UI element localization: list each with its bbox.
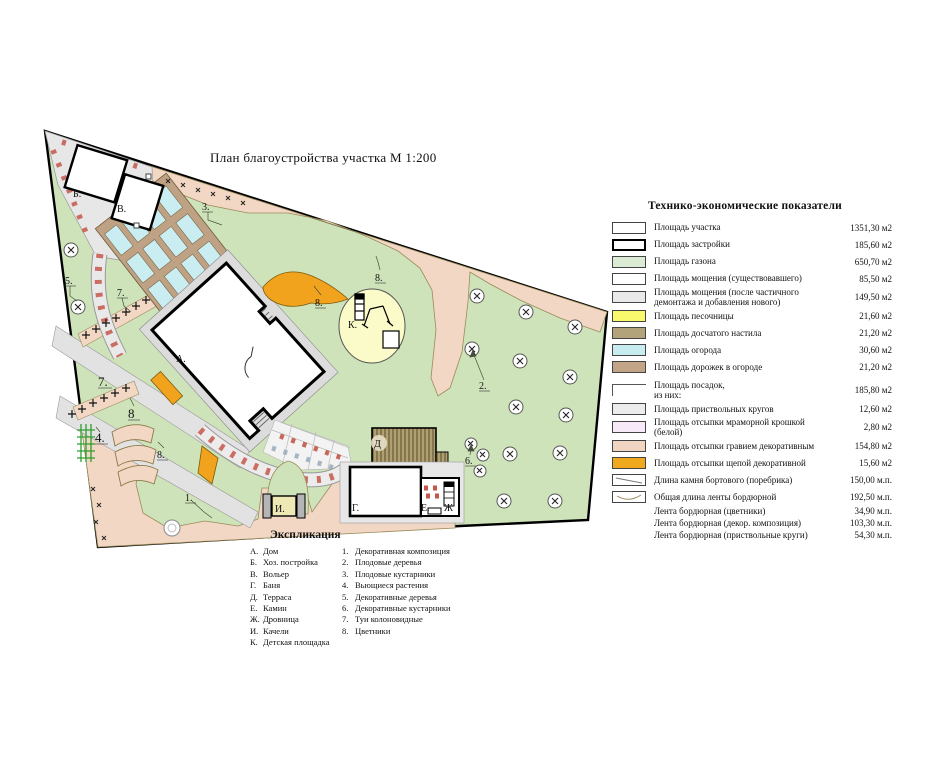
swatch-plantings bbox=[612, 384, 646, 396]
swatch-gravel bbox=[612, 440, 646, 452]
legend-row: Площадь досчатого настила 21,20 м2 bbox=[612, 324, 892, 341]
legend-label: Площадь дорожек в огороде bbox=[654, 362, 830, 372]
explication-panel: Экспликация А.Дом Б.Хоз. постройка В.Вол… bbox=[250, 529, 510, 649]
label-num-6: 6. bbox=[465, 456, 473, 467]
legend-value: 15,60 м2 bbox=[830, 458, 892, 468]
label-house-A: А. bbox=[176, 354, 186, 365]
label-num-1: 1. bbox=[185, 493, 193, 504]
swatch-garden-paths bbox=[612, 361, 646, 373]
legend-label: Площадь посадок, из них: bbox=[654, 380, 830, 400]
legend-label: Лента бордюрная (приствольные круги) bbox=[654, 530, 830, 540]
legend-row: Площадь мощения (после частичного демонт… bbox=[612, 287, 892, 307]
explication-item: Г.Баня bbox=[250, 580, 342, 591]
swatch-marble-chips bbox=[612, 421, 646, 433]
label-woodshed-Zh: Ж bbox=[444, 503, 453, 514]
explication-item: А.Дом bbox=[250, 546, 342, 557]
legend-row: Площадь застройки 185,60 м2 bbox=[612, 236, 892, 253]
legend-row: Площадь отсыпки щепой декоративной 15,60… bbox=[612, 454, 892, 471]
legend-value: 154,80 м2 bbox=[830, 441, 892, 451]
post-1 bbox=[146, 174, 151, 179]
legend-row: Лента бордюрная (цветники) 34,90 м.п. bbox=[612, 505, 892, 517]
terraced-flowerbeds bbox=[112, 425, 158, 486]
swatch-deck bbox=[612, 327, 646, 339]
legend-row: Площадь мощения (существовавшего) 85,50 … bbox=[612, 270, 892, 287]
legend-value: 1351,30 м2 bbox=[830, 223, 892, 233]
legend-value: 21,60 м2 bbox=[830, 311, 892, 321]
swatch-plot-area bbox=[612, 222, 646, 234]
legend-value: 149,50 м2 bbox=[830, 292, 892, 302]
legend-label: Площадь огорода bbox=[654, 345, 830, 355]
legend-label: Длина камня бортового (поребрика) bbox=[654, 475, 830, 485]
legend-row: Площадь участка 1351,30 м2 bbox=[612, 219, 892, 236]
swatch-border-tape bbox=[612, 491, 646, 503]
explication-header: Экспликация bbox=[270, 529, 420, 541]
legend-value: 192,50 м.п. bbox=[830, 492, 892, 502]
legend-value: 185,60 м2 bbox=[830, 240, 892, 250]
swatch-woodchips bbox=[612, 457, 646, 469]
well bbox=[164, 520, 180, 536]
legend-row: Площадь отсыпки мраморной крошкой (белой… bbox=[612, 417, 892, 437]
legend-value: 85,50 м2 bbox=[830, 274, 892, 284]
label-num-8b: 8. bbox=[375, 273, 383, 284]
building-G bbox=[350, 467, 421, 516]
legend-label: Площадь отсыпки гравием декоративным bbox=[654, 441, 830, 451]
legend-value: 21,20 м2 bbox=[830, 328, 892, 338]
explication-item: 1.Декоративная композиция bbox=[342, 546, 510, 557]
swatch-curb-stone bbox=[612, 474, 646, 486]
legend-row: Площадь газона 650,70 м2 bbox=[612, 253, 892, 270]
site-plan-sheet: А. Б. В. Г. Д Е. Ж И. К. 1. 2. 3. 4. 5. … bbox=[0, 0, 935, 768]
explication-item: Е.Камин bbox=[250, 603, 342, 614]
swatch-garden bbox=[612, 344, 646, 356]
legend-row: Длина камня бортового (поребрика) 150,00… bbox=[612, 471, 892, 488]
label-num-8a: 8. bbox=[315, 298, 323, 309]
label-terrace-D: Д bbox=[374, 439, 381, 450]
legend-label: Площадь застройки bbox=[654, 239, 830, 249]
label-playground-K: К. bbox=[348, 320, 357, 331]
explication-numbers: 1.Декоративная композиция 2.Плодовые дер… bbox=[342, 546, 510, 649]
label-building-V: В. bbox=[117, 204, 126, 215]
explication-item: Б.Хоз. постройка bbox=[250, 557, 342, 568]
legend-label: Площадь отсыпки щепой декоративной bbox=[654, 458, 830, 468]
legend-value: 650,70 м2 bbox=[830, 257, 892, 267]
legend-value: 2,80 м2 bbox=[830, 422, 892, 432]
label-num-7a: 7. bbox=[117, 288, 125, 299]
explication-item: 3.Плодовые кустарники bbox=[342, 569, 510, 580]
legend-label: Площадь мощения (существовавшего) bbox=[654, 273, 830, 283]
label-building-G: Г. bbox=[352, 503, 359, 514]
legend-label: Площадь приствольных кругов bbox=[654, 404, 830, 414]
legend-value: 54,30 м.п. bbox=[830, 530, 892, 540]
legend-value: 12,60 м2 bbox=[830, 404, 892, 414]
legend-panel: Технико-экономические показатели Площадь… bbox=[612, 200, 892, 541]
swatch-paving-new bbox=[612, 291, 646, 303]
explication-letters: А.Дом Б.Хоз. постройка В.Вольер Г.Баня Д… bbox=[250, 546, 342, 649]
legend-label: Общая длина ленты бордюрной bbox=[654, 492, 830, 502]
legend-label: Площадь песочницы bbox=[654, 311, 830, 321]
label-num-5: 5. bbox=[65, 276, 73, 287]
label-swing-I: И. bbox=[275, 504, 285, 515]
explication-item: Д.Терраса bbox=[250, 592, 342, 603]
legend-label: Площадь газона bbox=[654, 256, 830, 266]
label-num-8d: 8. bbox=[157, 450, 165, 461]
explication-item: 7.Туи колоновидные bbox=[342, 614, 510, 625]
legend-label: Площадь досчатого настила bbox=[654, 328, 830, 338]
legend-label: Лента бордюрная (цветники) bbox=[654, 506, 830, 516]
explication-item: 6.Декоративные кустарники bbox=[342, 603, 510, 614]
legend-label: Лента бордюрная (декор. композиция) bbox=[654, 518, 830, 528]
legend-value: 103,30 м.п. bbox=[830, 518, 892, 528]
legend-row: Общая длина ленты бордюрной 192,50 м.п. bbox=[612, 488, 892, 505]
legend-value: 185,80 м2 bbox=[830, 385, 892, 395]
explication-item: Ж.Дровница bbox=[250, 614, 342, 625]
legend-row: Площадь отсыпки гравием декоративным 154… bbox=[612, 437, 892, 454]
explication-item: В.Вольер bbox=[250, 569, 342, 580]
explication-item: 4.Вьющиеся растения bbox=[342, 580, 510, 591]
label-fireplace-E: Е. bbox=[421, 503, 430, 514]
legend-header: Технико-экономические показатели bbox=[648, 200, 892, 212]
legend-value: 21,20 м2 bbox=[830, 362, 892, 372]
post-2 bbox=[134, 223, 139, 228]
explication-item: 8.Цветники bbox=[342, 626, 510, 637]
legend-row: Лента бордюрная (приствольные круги) 54,… bbox=[612, 529, 892, 541]
explication-item: К.Детская площадка bbox=[250, 637, 342, 648]
label-num-7b: 7. bbox=[98, 374, 108, 389]
legend-value: 30,60 м2 bbox=[830, 345, 892, 355]
legend-row: Площадь посадок, из них: 185,80 м2 bbox=[612, 380, 892, 400]
label-num-2: 2. bbox=[479, 381, 487, 392]
explication-item: 2.Плодовые деревья bbox=[342, 557, 510, 568]
label-num-3: 3. bbox=[202, 202, 210, 213]
swatch-sandbox bbox=[612, 310, 646, 322]
legend-label: Площадь отсыпки мраморной крошкой (белой… bbox=[654, 417, 830, 437]
label-building-B: Б. bbox=[73, 189, 81, 200]
page-title: План благоустройства участка М 1:200 bbox=[210, 150, 437, 166]
legend-label: Площадь мощения (после частичного демонт… bbox=[654, 287, 830, 307]
legend-row: Площадь приствольных кругов 12,60 м2 bbox=[612, 400, 892, 417]
legend-row: Площадь дорожек в огороде 21,20 м2 bbox=[612, 358, 892, 375]
legend-value: 34,90 м.п. bbox=[830, 506, 892, 516]
label-num-8c: 8 bbox=[128, 406, 135, 421]
swatch-paving-old bbox=[612, 273, 646, 285]
label-num-4: 4. bbox=[95, 430, 105, 445]
swatch-empty bbox=[612, 505, 646, 517]
legend-row: Площадь огорода 30,60 м2 bbox=[612, 341, 892, 358]
swatch-built-area bbox=[612, 239, 646, 251]
swatch-lawn bbox=[612, 256, 646, 268]
legend-label: Площадь участка bbox=[654, 222, 830, 232]
explication-item: 5.Декоративные деревья bbox=[342, 592, 510, 603]
swatch-empty bbox=[612, 529, 646, 541]
swatch-tree-circles bbox=[612, 403, 646, 415]
swatch-empty bbox=[612, 517, 646, 529]
explication-item: И.Качели bbox=[250, 626, 342, 637]
legend-value: 150,00 м.п. bbox=[830, 475, 892, 485]
legend-row: Лента бордюрная (декор. композиция) 103,… bbox=[612, 517, 892, 529]
legend-row: Площадь песочницы 21,60 м2 bbox=[612, 307, 892, 324]
